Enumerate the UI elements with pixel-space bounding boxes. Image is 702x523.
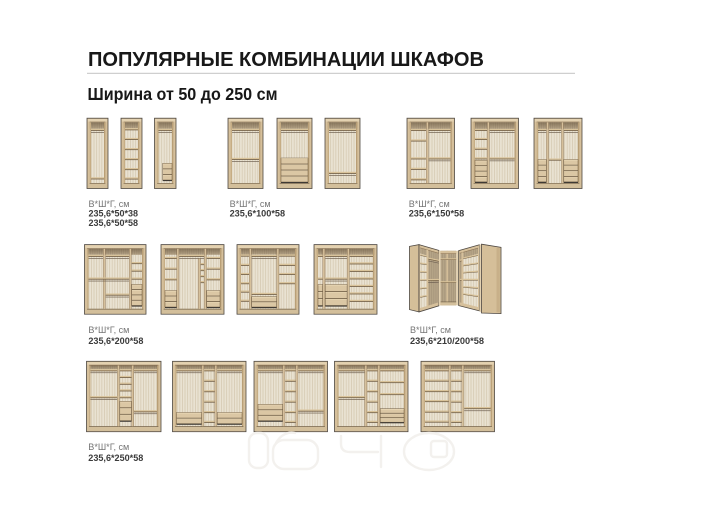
svg-text:В*Ш*Г, см: В*Ш*Г, см: [88, 441, 129, 452]
svg-text:Ширина от 50 до 250 см: Ширина от 50 до 250 см: [88, 84, 278, 104]
svg-text:В*Ш*Г, см: В*Ш*Г, см: [409, 198, 450, 209]
svg-text:В*Ш*Г, см: В*Ш*Г, см: [88, 324, 129, 335]
svg-text:235,6*50*58: 235,6*50*58: [89, 218, 139, 229]
svg-text:В*Ш*Г, см: В*Ш*Г, см: [230, 198, 271, 209]
svg-text:235,6*200*58: 235,6*200*58: [88, 336, 144, 347]
svg-text:235,6*100*58: 235,6*100*58: [230, 209, 286, 220]
svg-text:235,6*250*58: 235,6*250*58: [88, 453, 144, 464]
svg-text:В*Ш*Г, см: В*Ш*Г, см: [89, 198, 130, 209]
svg-text:ПОПУЛЯРНЫЕ КОМБИНАЦИИ ШКАФОВ: ПОПУЛЯРНЫЕ КОМБИНАЦИИ ШКАФОВ: [88, 49, 484, 71]
svg-text:235,6*150*58: 235,6*150*58: [409, 209, 465, 220]
svg-text:В*Ш*Г, см: В*Ш*Г, см: [410, 324, 451, 335]
svg-text:235,6*210/200*58: 235,6*210/200*58: [410, 336, 485, 347]
